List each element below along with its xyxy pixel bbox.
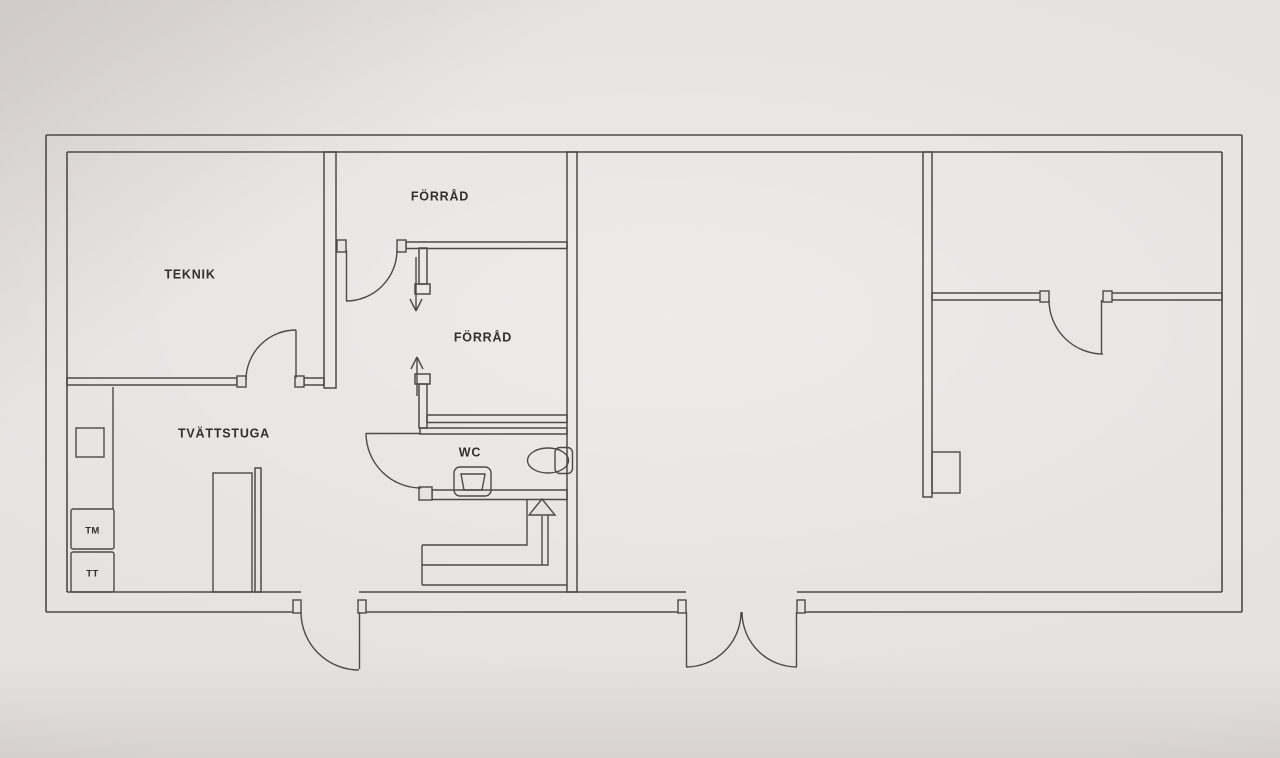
wash-basin — [454, 467, 491, 496]
toilet — [528, 448, 573, 474]
door-teknik — [246, 330, 296, 380]
stair-direction-arrow — [529, 499, 555, 565]
appliance-label-tm: TM — [85, 526, 100, 537]
door-wc — [366, 433, 421, 488]
room-label-forrad-top: FÖRRÅD — [411, 189, 469, 204]
pillar — [932, 452, 960, 493]
floorplan-photo: TEKNIK FÖRRÅD FÖRRÅD TVÄTTSTUGA WC TM TT — [0, 0, 1280, 758]
door-forrad-top — [346, 250, 397, 301]
door-right-room — [1049, 300, 1103, 354]
bench — [213, 473, 252, 592]
room-label-tvattstuga: TVÄTTSTUGA — [178, 426, 270, 441]
floorplan-svg: TEKNIK FÖRRÅD FÖRRÅD TVÄTTSTUGA WC TM TT — [0, 0, 1280, 758]
double-entry-door — [686, 612, 797, 667]
laundry-sink — [76, 428, 104, 457]
room-label-teknik: TEKNIK — [164, 268, 215, 282]
room-label-wc: WC — [459, 446, 481, 460]
passage-arrow-up — [411, 357, 423, 396]
exterior-walls — [46, 135, 1242, 612]
appliance-label-tt: TT — [86, 569, 98, 580]
room-label-forrad-middle: FÖRRÅD — [454, 330, 512, 345]
door-exterior-left — [301, 612, 360, 670]
interior-walls — [67, 152, 1222, 592]
